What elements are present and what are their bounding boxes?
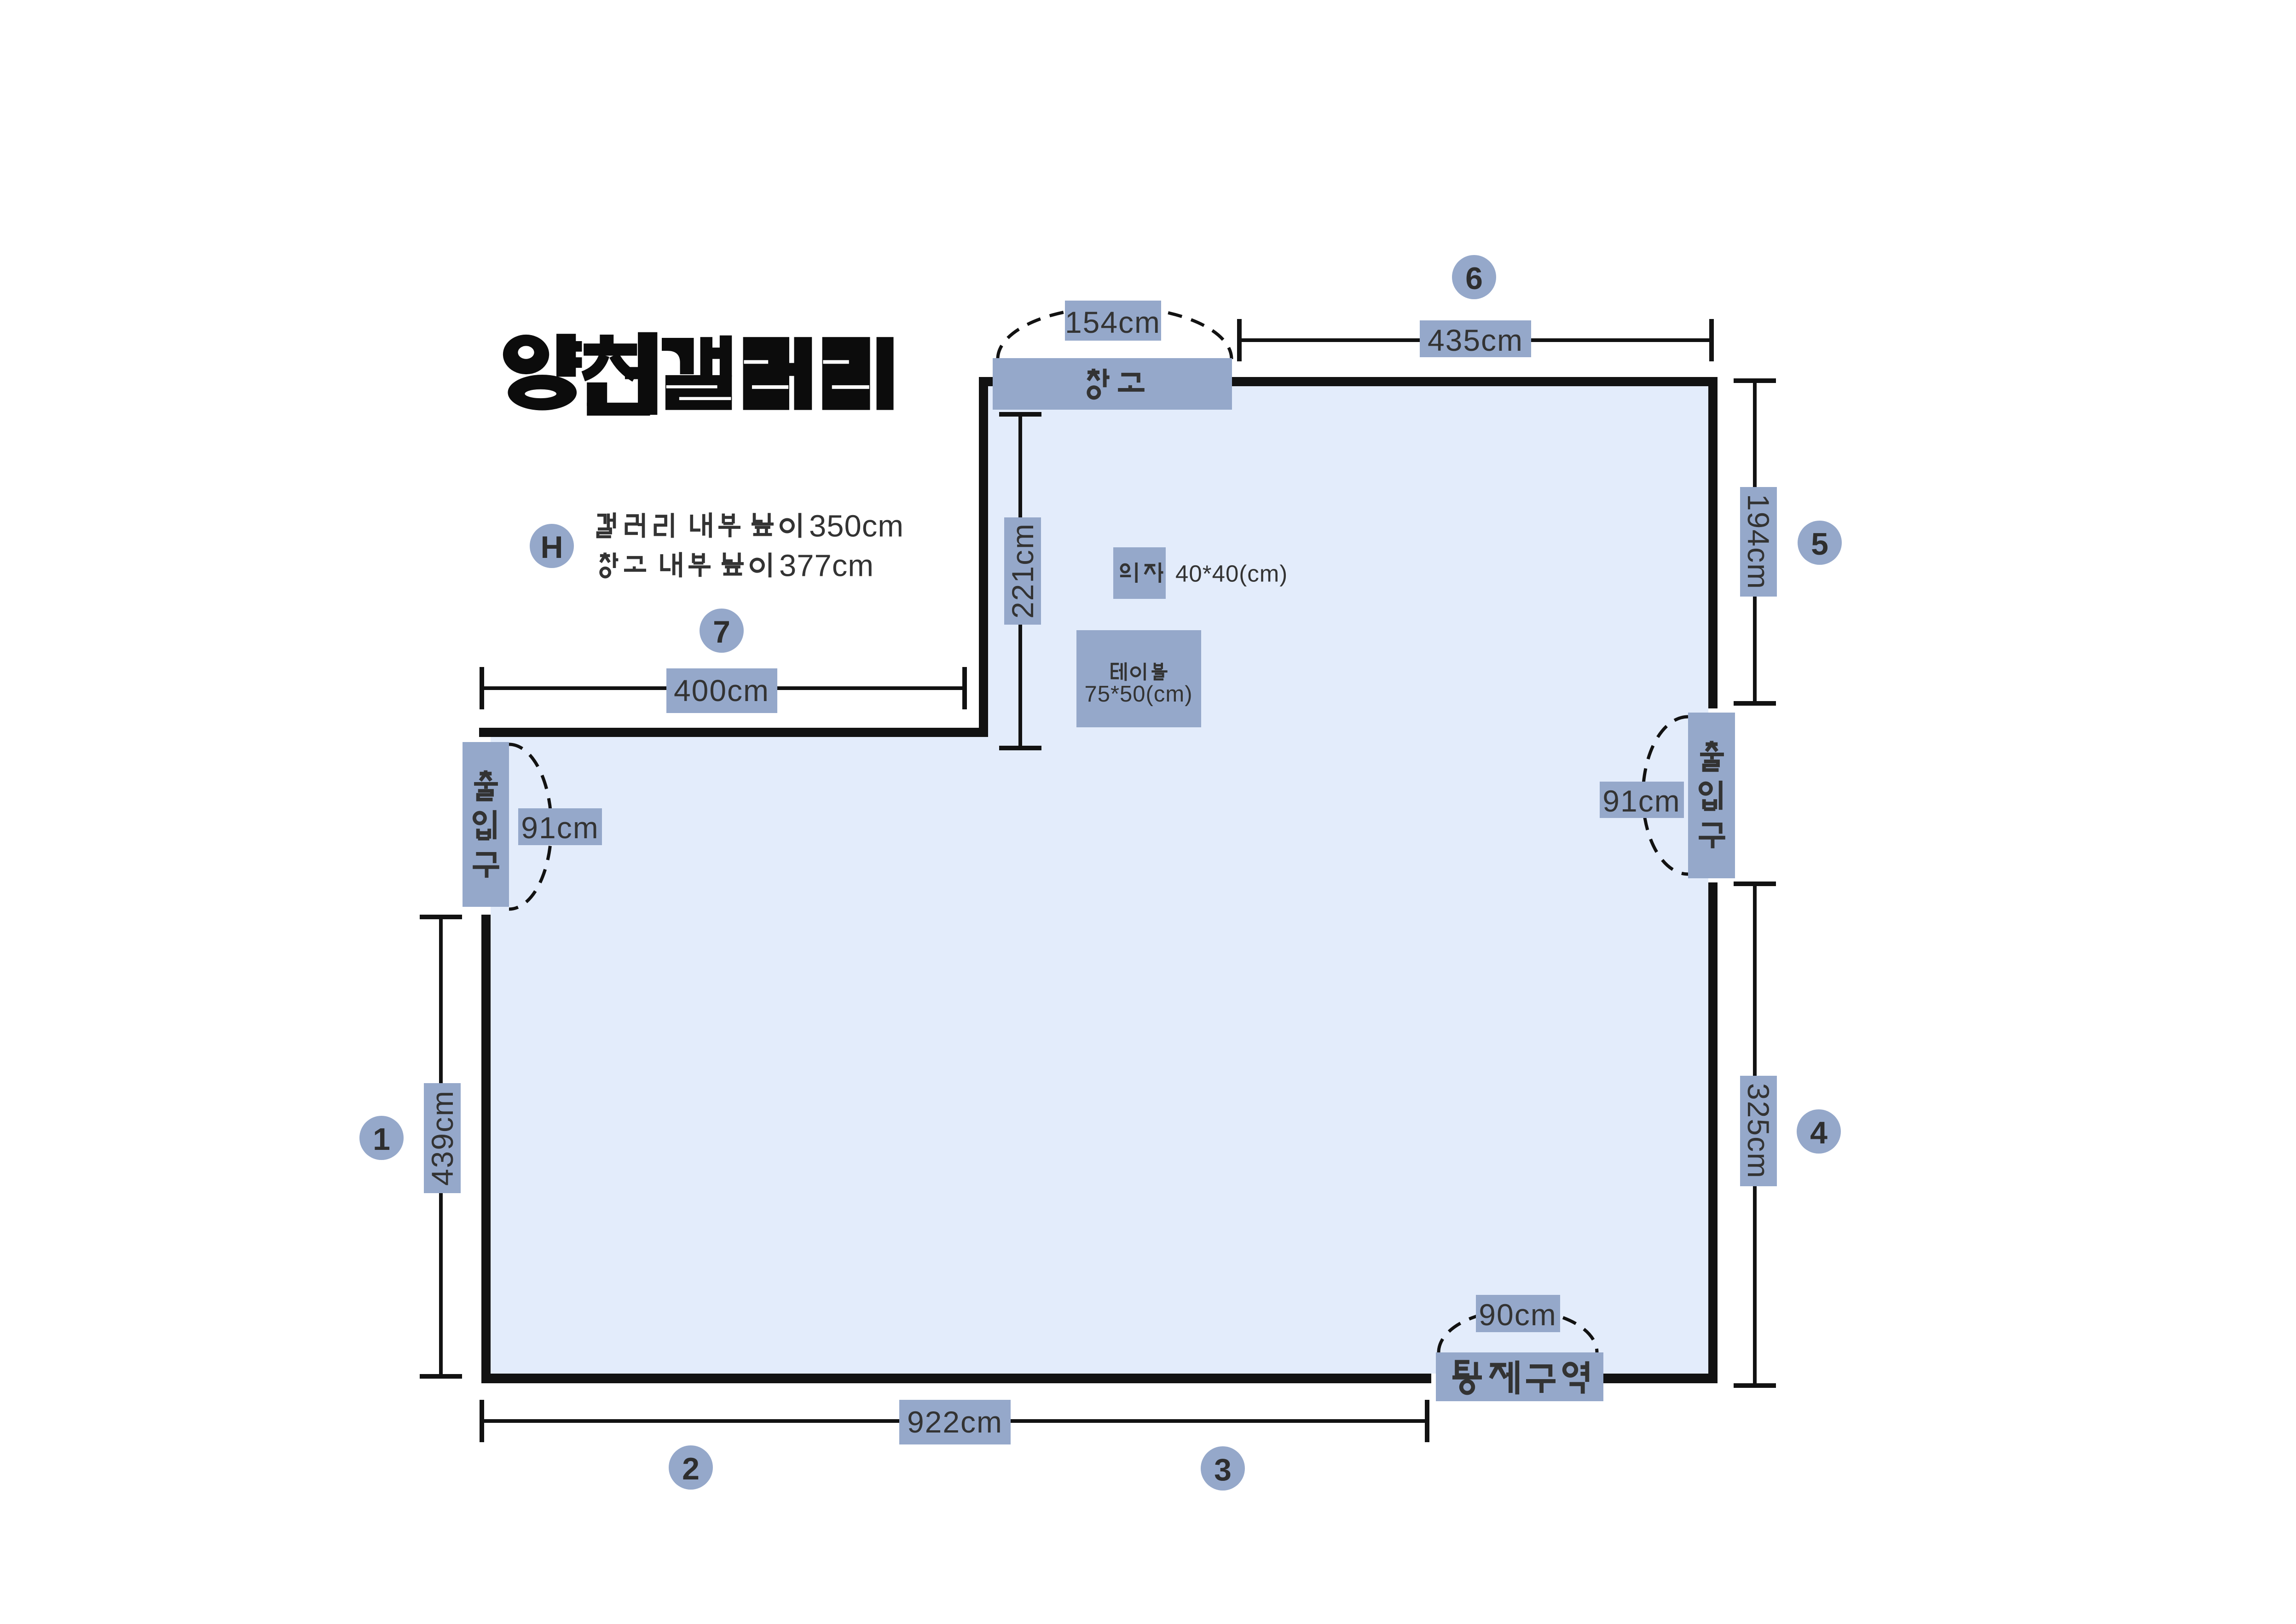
svg-text:400cm: 400cm <box>674 673 769 708</box>
svg-text:325cm: 325cm <box>1741 1083 1775 1179</box>
svg-text:6: 6 <box>1465 261 1483 296</box>
svg-text:5: 5 <box>1811 527 1828 562</box>
svg-text:91cm: 91cm <box>521 811 599 845</box>
svg-text:1: 1 <box>373 1122 390 1157</box>
svg-text:3: 3 <box>1214 1452 1232 1487</box>
svg-text:435cm: 435cm <box>1428 323 1523 357</box>
svg-text:350cm: 350cm <box>809 509 904 544</box>
svg-text:H: H <box>540 530 563 565</box>
svg-text:439cm: 439cm <box>425 1090 459 1186</box>
svg-text:922cm: 922cm <box>907 1405 1003 1439</box>
svg-text:91cm: 91cm <box>1602 784 1680 818</box>
svg-text:2: 2 <box>682 1451 700 1486</box>
svg-text:75*50(cm): 75*50(cm) <box>1084 682 1192 707</box>
svg-text:194cm: 194cm <box>1741 494 1775 590</box>
svg-text:7: 7 <box>713 615 730 650</box>
svg-text:154cm: 154cm <box>1065 305 1161 339</box>
svg-text:40*40(cm): 40*40(cm) <box>1175 561 1288 587</box>
svg-text:4: 4 <box>1810 1115 1828 1150</box>
svg-text:90cm: 90cm <box>1479 1298 1556 1332</box>
svg-text:221cm: 221cm <box>1006 523 1040 619</box>
svg-text:377cm: 377cm <box>779 549 874 583</box>
